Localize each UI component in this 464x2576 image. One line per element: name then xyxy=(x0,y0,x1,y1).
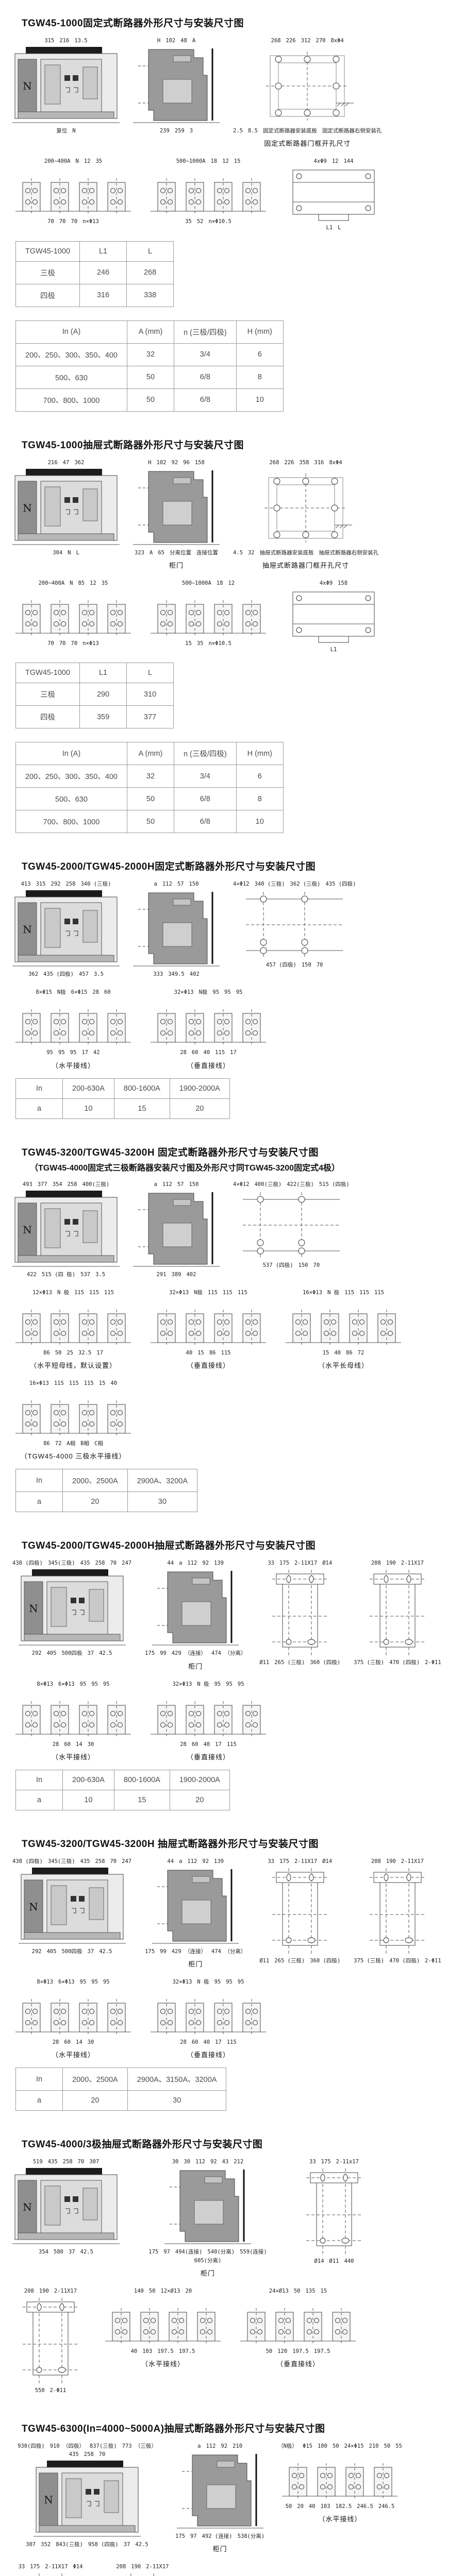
dimension-label: 42.5 xyxy=(99,1948,112,1955)
drawout-breaker-front-view: 438 (四极)345(三极)43525870247 N 292405500四极… xyxy=(12,1559,131,1658)
dimension-label: 435 xyxy=(48,2159,58,2165)
dimension-labels-top: a11257150 xyxy=(154,881,199,888)
dimension-labels-bottom: L1L xyxy=(326,225,341,231)
figures-row: 413315292258340 (三极) N 362435 (四极)4573.5… xyxy=(12,880,452,1070)
dimension-labels-bottom: 28601430 xyxy=(53,1741,94,1748)
dimension-labels-bottom: 323A65分离位置连接位置 xyxy=(135,550,218,556)
dimension-labels-top: 4×Φ12400(三极)422(三极)515 (四极) xyxy=(233,1181,350,1188)
dimension-labels-top: 438 (四极)345(三极)43525870247 xyxy=(12,1560,131,1567)
dimension-labels-top: 413315292258340 (三极) xyxy=(21,881,111,888)
section-title: TGW45-1000固定式断路器外形尺寸与安装尺寸图 xyxy=(22,15,452,29)
dimension-label: 40 xyxy=(204,1049,210,1056)
drawout-breaker-side-view: H1029296158 323A65分离位置连接位置柜门 xyxy=(133,459,220,570)
cabinet-mounting-holes-drawing xyxy=(262,1568,338,1658)
dimension-label: 60 xyxy=(64,1741,71,1748)
fixed-breaker-side-view: H10248A 2392593 xyxy=(133,37,220,135)
table-header-cell: n (三极/四极) xyxy=(174,320,236,343)
table-cell: 20 xyxy=(63,1492,128,1512)
section-1: TGW45-1000固定式断路器外形尺寸与安装尺寸图31521613.5 N 复… xyxy=(5,7,459,412)
drawout-breaker-front-view-drawing: N xyxy=(19,1866,126,1947)
front-view-svg: N xyxy=(12,45,120,127)
dimension-label: 291 xyxy=(157,1272,167,1278)
section-title: TGW45-2000/TGW45-2000H抽屉式断路器外形尺寸与安装尺寸图 xyxy=(22,1538,452,1552)
dimension-label: 50 xyxy=(55,1350,62,1357)
dimension-label: 30 xyxy=(172,2159,179,2165)
dimension-label: 474 （分离） xyxy=(211,1650,246,1657)
dimension-label: 3 xyxy=(190,128,193,134)
dimension-label: 115 xyxy=(238,1290,247,1296)
table-cell: 8 xyxy=(236,788,283,810)
dimension-label: 182.5 xyxy=(336,2503,352,2510)
dimension-label: 复位 xyxy=(56,128,67,134)
figure-caption: （水平长母线） xyxy=(318,1360,369,1370)
dimension-label: 35 xyxy=(95,158,102,165)
dimension-label: 492 (连接) xyxy=(202,2533,233,2540)
dimension-label: 60 xyxy=(192,1741,198,1748)
busbar-svg xyxy=(237,2296,359,2347)
dimension-label: 115 xyxy=(54,1380,64,1387)
side-mounting-plate-drawing xyxy=(104,2571,180,2576)
dimension-label: 2-11X17 xyxy=(401,1560,424,1567)
dimension-label: 32×Φ13 xyxy=(172,1979,192,1986)
dimension-label: 32×Φ13 xyxy=(174,989,194,996)
figure-caption: 柜门 xyxy=(188,1959,203,1969)
dimension-label: 115 xyxy=(227,1741,237,1748)
dimension-label: n×Φ13 xyxy=(82,640,99,647)
dimension-label: 200~400A xyxy=(39,580,65,587)
dimension-label: 17 xyxy=(215,2039,222,2046)
dimension-label: 12×Φ13 xyxy=(32,1290,52,1296)
vertical-busbar-drawing xyxy=(237,2296,359,2347)
busbar-svg xyxy=(147,1689,269,1740)
dimension-labels-bottom: Ø11265 (三极)360 (四极) xyxy=(259,1958,340,1964)
busbar-svg xyxy=(12,588,134,639)
dimension-label: 190 xyxy=(39,2288,49,2295)
dimension-label: Ø14 xyxy=(322,1560,332,1567)
dimension-label: 115 xyxy=(344,1290,354,1296)
vertical-busbar-drawing xyxy=(147,1987,269,2038)
table-cell: 310 xyxy=(127,683,174,706)
dimension-labels-bottom: L1 xyxy=(330,647,337,653)
busbar-200-400A: 200~400AN851235 707070n×Φ13 xyxy=(12,579,134,648)
dimension-label: 99 xyxy=(160,1948,167,1955)
dimension-label: 固定式断路器安装底板 xyxy=(263,128,317,134)
dimension-label: 12×Ø13 xyxy=(161,2288,180,2295)
dimension-label: 60 xyxy=(64,2039,71,2046)
dimension-labels-top: 30301129243212 xyxy=(172,2159,244,2165)
horizontal-short-busbar: 12×Φ13N 极115115115 86502532.517（水平短母线，默认… xyxy=(12,1289,134,1370)
dimension-label: 474 （分离） xyxy=(211,1948,246,1955)
dimension-label: 95 xyxy=(70,1049,77,1056)
dimension-label: 360 (四极) xyxy=(310,1659,340,1666)
dimension-label: 95 xyxy=(58,1049,65,1056)
dimension-label: 100 xyxy=(318,2443,327,2450)
table-cell: a xyxy=(16,1098,63,1118)
svg-text:N: N xyxy=(23,80,32,92)
dimension-labels-top: 31521613.5 xyxy=(44,38,87,44)
table-cell: 10 xyxy=(63,1098,114,1118)
dimension-label: 4xΦ9 xyxy=(320,580,333,587)
dimension-label: 268 xyxy=(271,38,281,44)
dimension-labels-bottom: 375 (三极)470 (四极)2-Φ11 xyxy=(354,1958,441,1964)
mounting-plate-svg xyxy=(359,1568,436,1658)
dimension-labels-bottom: 3552n×Φ10.5 xyxy=(185,218,231,225)
table-header-cell: H (mm) xyxy=(236,742,283,765)
tables-row: In200-630A800-1600A1900-2000Aa101520 xyxy=(15,1770,452,1810)
dimension-labels-bottom: 362435 (四极)4573.5 xyxy=(28,971,104,978)
table-cell: 三极 xyxy=(16,683,80,706)
tables-row: In2000、2500A2900A、3150A、3200Aa2030 xyxy=(15,2067,452,2111)
dimension-label: Ø11 xyxy=(259,1958,269,1964)
dimension-label: 95 xyxy=(224,989,231,996)
dimension-labels-bottom: Ø14Ø11440 xyxy=(314,2258,354,2265)
fixed-breaker-side-view: a11257150 333349.5402 xyxy=(133,880,220,979)
svg-text:N: N xyxy=(44,2494,53,2506)
dimension-label: 405 xyxy=(47,1650,57,1657)
dimension-label: 360 (四极) xyxy=(310,1958,340,1964)
dimension-label: 362 (三极) xyxy=(290,881,321,888)
dimension-label: 258 xyxy=(68,1181,77,1188)
busbar-svg xyxy=(12,997,134,1048)
figure-caption: （水平接线） xyxy=(52,2049,95,2059)
drawout-breaker-side-view-drawing xyxy=(152,1568,239,1649)
dimension-labels-top: 930(四极)910 （四极）837(三极)773 （三极）43525870 xyxy=(12,2443,162,2458)
dimension-label: N xyxy=(75,158,78,165)
vertical-busbar: 32×Φ13N极115115115 401586115（垂直接线） xyxy=(147,1289,269,1370)
dimension-labels-bottom: 502040103182.5246.5246.5 xyxy=(286,2503,395,2510)
dimension-label: 固定式断路器右侧安装孔 xyxy=(322,128,382,134)
dimension-labels-top: 331752-11X17Ø14 xyxy=(268,1858,332,1865)
dimension-labels-bottom: 28604011517 xyxy=(180,1049,237,1056)
dimension-label: 559(连接) xyxy=(240,2249,267,2256)
dimension-label: 208 xyxy=(371,1858,381,1865)
dimension-label: 18 xyxy=(210,158,217,165)
dimension-label: 17 xyxy=(81,1049,88,1056)
dimension-label: 33 xyxy=(19,2564,25,2570)
dimension-label: 14 xyxy=(76,2039,82,2046)
dimension-label: H xyxy=(148,460,151,466)
dimension-label: 2-11X17 xyxy=(54,2288,77,2295)
table-row: a2030 xyxy=(16,1492,197,1512)
busbar-200-400A-drawing xyxy=(12,588,134,639)
figure-caption: 抽屉式断路器门框开孔尺寸 xyxy=(262,560,349,570)
door-frame-svg xyxy=(257,467,354,549)
svg-text:N: N xyxy=(29,1901,38,1913)
figures-row: 438 (四极)345(三极)43525870247 N 292405500四极… xyxy=(12,1857,452,2060)
dimension-label: 190 xyxy=(131,2564,141,2570)
dimension-label: 8×Φ15 xyxy=(36,989,52,996)
dimension-label: 292 xyxy=(32,1948,42,1955)
horizontal-short-busbar-drawing xyxy=(12,1297,134,1349)
bottom-mounting-view: 4xΦ9158 L1 xyxy=(283,579,385,654)
horizontal-busbar-drawing xyxy=(12,1689,134,1740)
dimension-label: 345(三极) xyxy=(48,1858,75,1865)
dimension-label: 70 xyxy=(47,218,54,225)
dimension-labels-top: 16×Φ131151151151540 xyxy=(29,1380,117,1387)
dimension-label: 112 xyxy=(195,2159,205,2165)
table-cell: a xyxy=(16,1790,63,1810)
fixed-breaker-side-view-drawing xyxy=(133,1189,220,1270)
dimension-labels-top: 200~400AN851235 xyxy=(39,580,108,587)
dimension-label: 115 xyxy=(104,1290,114,1296)
dimension-label: 95 xyxy=(226,1681,233,1688)
dimension-label: 422 xyxy=(27,1272,37,1278)
dimension-label: N xyxy=(72,128,75,134)
table-row: 三极290310 xyxy=(16,683,174,706)
dimension-labels-top: 331752-11X17Φ14 xyxy=(19,2564,83,2570)
dimension-label: 115 xyxy=(221,1350,231,1357)
dimension-label: 8×Φ13 xyxy=(37,1681,53,1688)
dimension-label: 95 xyxy=(80,1979,87,1986)
front-view-svg: N xyxy=(12,1189,120,1270)
door-frame-cutout: 2682263122708xΦ4 2.58.5固定式断路器安装底板固定式断路器右… xyxy=(233,37,382,148)
dimension-label: 200~400A xyxy=(44,158,71,165)
busbar-500-1000A-drawing xyxy=(147,166,269,217)
dimension-label: 44 xyxy=(167,1560,174,1567)
figure-caption: （垂直接线） xyxy=(187,2049,230,2059)
figures-row: 51943525870307 N 3545803742.530301129243… xyxy=(12,2158,452,2395)
table-cell: 20 xyxy=(170,1790,229,1810)
dimension-labels-bottom: 28604017115 xyxy=(180,1741,237,1748)
busbar-svg xyxy=(12,166,134,217)
dimension-label: B相 xyxy=(80,1440,89,1447)
dimension-label: 307 xyxy=(89,2159,99,2165)
dimension-label: 70 xyxy=(78,2159,85,2165)
dimension-label: 40 xyxy=(204,2039,210,2046)
dimension-labels-bottom: 292405500四极3742.5 xyxy=(32,1948,112,1955)
dimension-label: 44 xyxy=(167,1858,174,1865)
dimension-labels-bottom: 457 (四极)15070 xyxy=(266,962,323,969)
dimension-label: 500四极 xyxy=(62,1948,82,1955)
section-8: TGW45-6300(In=4000~5000A)抽屉式断路器外形尺寸与安装尺寸… xyxy=(5,2413,459,2576)
mounting-holes-svg xyxy=(243,889,346,961)
dimension-label: 910 （四极） xyxy=(50,2443,85,2450)
drawout-breaker-side-view-drawing xyxy=(177,2451,263,2532)
dimension-label: 抽屉式断路器右侧安装孔 xyxy=(319,550,379,556)
dimension-label: 112 xyxy=(187,1858,197,1865)
vertical-busbar-drawing xyxy=(147,1689,269,1740)
mounting-plate-svg xyxy=(296,2166,372,2257)
dimension-label: 70 xyxy=(71,218,78,225)
table-cell: 10 xyxy=(236,388,283,411)
side-view-svg xyxy=(133,45,220,127)
dimension-label: 457 xyxy=(79,971,89,978)
dimension-label: 95 xyxy=(80,1681,87,1688)
dimension-label: 60 xyxy=(104,989,111,996)
dimension-label: 120 xyxy=(277,2348,287,2355)
dimension-label: 175 xyxy=(175,2533,185,2540)
dimension-label: 140 xyxy=(134,2288,144,2295)
dimension-label: 35 xyxy=(102,580,108,587)
dimension-label: 139 xyxy=(214,1560,224,1567)
dimension-labels-top: 2081902-11X17 xyxy=(24,2288,77,2295)
dimension-label: 316 xyxy=(314,460,324,466)
vertical-busbar: 32×Φ13N极959595 28604011517（垂直接线） xyxy=(147,988,269,1070)
dimension-label: 340 (三极) xyxy=(255,881,285,888)
dimension-labels-bottom: 15408672 xyxy=(323,1350,364,1357)
dimension-label: 4×Φ12 xyxy=(233,1181,250,1188)
dimension-label: 115 xyxy=(215,1049,225,1056)
document-body: TGW45-1000固定式断路器外形尺寸与安装尺寸图31521613.5 N 复… xyxy=(5,7,459,2576)
dimension-label: 6×Φ13 xyxy=(58,1681,75,1688)
dimension-label: L1 xyxy=(326,225,333,231)
dimension-label: 15 xyxy=(320,2288,327,2295)
busbar-svg xyxy=(147,997,269,1048)
dimension-label: 25 xyxy=(67,1350,73,1357)
dimension-label: 239 xyxy=(160,128,170,134)
dimension-label: 515 (四 极) xyxy=(42,1272,75,1278)
dimension-label: N 极 xyxy=(57,1290,69,1296)
table-cell: 338 xyxy=(127,284,174,307)
dimension-label: 400(三极) xyxy=(82,1181,110,1188)
dimension-label: 37 xyxy=(124,2541,130,2548)
dimension-labels-bottom: 333349.5402 xyxy=(153,971,200,978)
horizontal-long-busbar: 16×Φ13N 极115115115 15408672（水平长母线） xyxy=(283,1289,404,1370)
table-header-row: TGW45-1000L1L xyxy=(16,241,174,261)
dimension-label: 95 xyxy=(46,1049,53,1056)
dimension-table-1: In2000、2500A2900A、3150A、3200Aa2030 xyxy=(15,2067,226,2111)
dimension-label: 6×Φ15 xyxy=(71,989,88,996)
table-header-cell: 800-1600A xyxy=(114,1770,170,1790)
section-title: TGW45-2000/TGW45-2000H固定式断路器外形尺寸与安装尺寸图 xyxy=(22,859,452,873)
dimension-label: 265 (三极) xyxy=(274,1659,305,1666)
dimension-label: 28 xyxy=(180,1049,187,1056)
dimension-label: 32×Φ13 xyxy=(172,1681,192,1688)
dimension-label: 96 xyxy=(183,460,190,466)
dimension-label: 958 (四极) xyxy=(88,2541,119,2548)
side-view-svg xyxy=(152,1866,239,1947)
figure-caption: （水平短母线，默认设置） xyxy=(30,1360,117,1370)
dimension-label: 92 xyxy=(210,2159,217,2165)
dimension-label: 362 xyxy=(28,971,38,978)
table-cell: 32 xyxy=(127,343,174,366)
table-row: 200、250、300、350、400323/46 xyxy=(16,343,284,366)
table-header-cell: 200-630A xyxy=(63,1078,114,1098)
dimension-labels-bottom: 2.58.5固定式断路器安装底板固定式断路器右侧安装孔 xyxy=(233,128,382,134)
bottom-view-svg xyxy=(283,588,385,646)
dimension-label: 333 xyxy=(153,971,163,978)
dimension-label: 65 xyxy=(158,550,164,556)
horizontal-busbar-drawing xyxy=(279,2451,401,2502)
cabinet-mounting-holes-drawing xyxy=(296,2166,372,2257)
busbar-svg xyxy=(12,1689,134,1740)
dimension-label: 70 xyxy=(110,1858,117,1865)
dimension-labels-top: 8×Φ136×Φ13959595 xyxy=(37,1681,109,1688)
dimension-labels-bottom: 5502-Φ11 xyxy=(35,2387,67,2394)
tgw45-4000-3pole-busbar-drawing xyxy=(12,1388,134,1439)
dimension-labels-bottom: 3545803742.5 xyxy=(39,2249,93,2256)
front-view-svg: N xyxy=(12,2166,120,2248)
dimension-labels-bottom: 8672A相B相C相 xyxy=(43,1440,103,1447)
dimension-label: 103 xyxy=(321,2503,330,2510)
table-cell: 8 xyxy=(236,366,283,388)
dimension-labels-bottom: 292405500四极3742.5 xyxy=(32,1650,112,1657)
busbar-500-1000A: 500~1000A181215 3552n×Φ10.5 xyxy=(147,157,269,226)
dimension-label: 197.5 xyxy=(157,2348,174,2355)
dimension-label: 435 xyxy=(80,1560,90,1567)
dimension-table-2: In (A)A (mm)n (三极/四极)H (mm)200、250、300、3… xyxy=(15,742,284,833)
figure-caption: （水平接线） xyxy=(52,1060,95,1070)
dimension-label: 135 xyxy=(305,2288,315,2295)
section-title: TGW45-4000/3极抽屉式断路器外形尺寸与安装尺寸图 xyxy=(22,2137,452,2150)
table-row: 700、800、1000506/810 xyxy=(16,388,284,411)
section-2: TGW45-1000抽屉式断路器外形尺寸与安装尺寸图21647362 N 304… xyxy=(5,429,459,834)
dimension-label: 210 xyxy=(369,2443,379,2450)
dimension-label: 95 xyxy=(214,1979,221,1986)
dimension-label: 95 xyxy=(91,1979,98,1986)
drawout-breaker-side-view-drawing xyxy=(133,467,220,549)
section-title: TGW45-1000抽屉式断路器外形尺寸与安装尺寸图 xyxy=(22,437,452,451)
dimension-labels-top: 12×Φ13N 极115115115 xyxy=(32,1290,114,1296)
dimension-table-1: In200-630A800-1600A1900-2000Aa101520 xyxy=(15,1078,230,1119)
table-cell: 10 xyxy=(63,1790,114,1810)
dimension-label: N极 xyxy=(57,989,66,996)
drawout-breaker-front-view: 51943525870307 N 3545803742.5 xyxy=(12,2158,120,2257)
dimension-label: 17 xyxy=(215,1741,222,1748)
dimension-label: 315 xyxy=(36,881,46,888)
table-cell: 246 xyxy=(80,261,127,284)
busbar-200-400A: 200~400AN1235 707070n×Φ13 xyxy=(12,157,134,226)
section-title: TGW45-3200/TGW45-3200H 抽屉式断路器外形尺寸与安装尺寸图 xyxy=(22,1836,452,1850)
horizontal-busbar: 8×Φ136×Φ13959595 28601430（水平接线） xyxy=(12,1978,134,2059)
dimension-labels-bottom: 17599429 （连接）474 （分离） xyxy=(145,1948,246,1955)
dimension-label: 115 xyxy=(227,2039,237,2046)
dimension-label: 500~1000A xyxy=(182,580,211,587)
dimension-labels-top: 331752-11X17Ø14 xyxy=(268,1560,332,1567)
dimension-label: 258 xyxy=(66,881,76,888)
dimension-label: 70 xyxy=(317,962,323,969)
table-row: a101520 xyxy=(16,1098,230,1118)
dimension-label: 18 xyxy=(217,580,223,587)
dimension-label: 4×Φ12 xyxy=(233,881,250,888)
tables-row: TGW45-1000L1L三极290310四极359377In (A)A (mm… xyxy=(15,663,452,833)
horizontal-busbar: （N极）Φ151005024×Φ152105055 502040103182.5… xyxy=(278,2442,402,2523)
table-header-cell: L1 xyxy=(80,241,127,261)
dimension-labels-bottom: 375 (三极)470 (四极)2-Φ11 xyxy=(354,1659,441,1666)
table-cell: 6 xyxy=(236,765,283,788)
dimension-label: 312 xyxy=(301,38,311,44)
dimension-label: 402 xyxy=(186,1272,196,1278)
dimension-label: 70 xyxy=(71,640,78,647)
dimension-label: 837(三极) xyxy=(90,2443,117,2450)
fixed-breaker-front-view: 31521613.5 N 复位N xyxy=(12,37,120,135)
dimension-label: 70 xyxy=(110,1560,117,1567)
drawout-breaker-side-view-drawing xyxy=(152,1866,239,1947)
svg-text:N: N xyxy=(23,502,32,514)
dimension-labels-top: 438 (四极)345(三极)43525870247 xyxy=(12,1858,131,1865)
table-row: 四极359377 xyxy=(16,706,174,728)
dimension-label: 102 xyxy=(165,38,175,44)
dimension-labels-top: 2081902-11X17 xyxy=(371,1560,424,1567)
figures-row: 21647362 N 304NLH1029296158 323A65分离位置连接… xyxy=(12,459,452,655)
dimension-label: 580 xyxy=(54,2249,63,2256)
table-cell: 359 xyxy=(80,706,127,728)
dimension-labels-bottom: 537 (四极)15070 xyxy=(263,1262,320,1269)
dimension-label: 605(分离) xyxy=(194,2258,222,2264)
side-mounting-plate-drawing xyxy=(12,2296,89,2386)
dimension-label: 32×Φ13 xyxy=(169,1290,189,1296)
dimension-label: a xyxy=(179,1560,182,1567)
cabinet-mounting-holes-drawing xyxy=(12,2571,89,2576)
drawout-breaker-side-view: a11292210 17597492 (连接)538(分离)柜门 xyxy=(175,2442,264,2553)
dimension-label: N 极 xyxy=(327,1290,339,1296)
dimension-label: 112 xyxy=(206,2443,216,2450)
dimension-label: 97 xyxy=(190,2533,197,2540)
dimension-label: 3.5 xyxy=(95,1272,105,1278)
bottom-mounting-view: 4xΦ912144 L1L xyxy=(283,157,385,232)
dimension-labels-top: 500~1000A1812 xyxy=(182,580,235,587)
dimension-label: 175 xyxy=(145,1650,155,1657)
